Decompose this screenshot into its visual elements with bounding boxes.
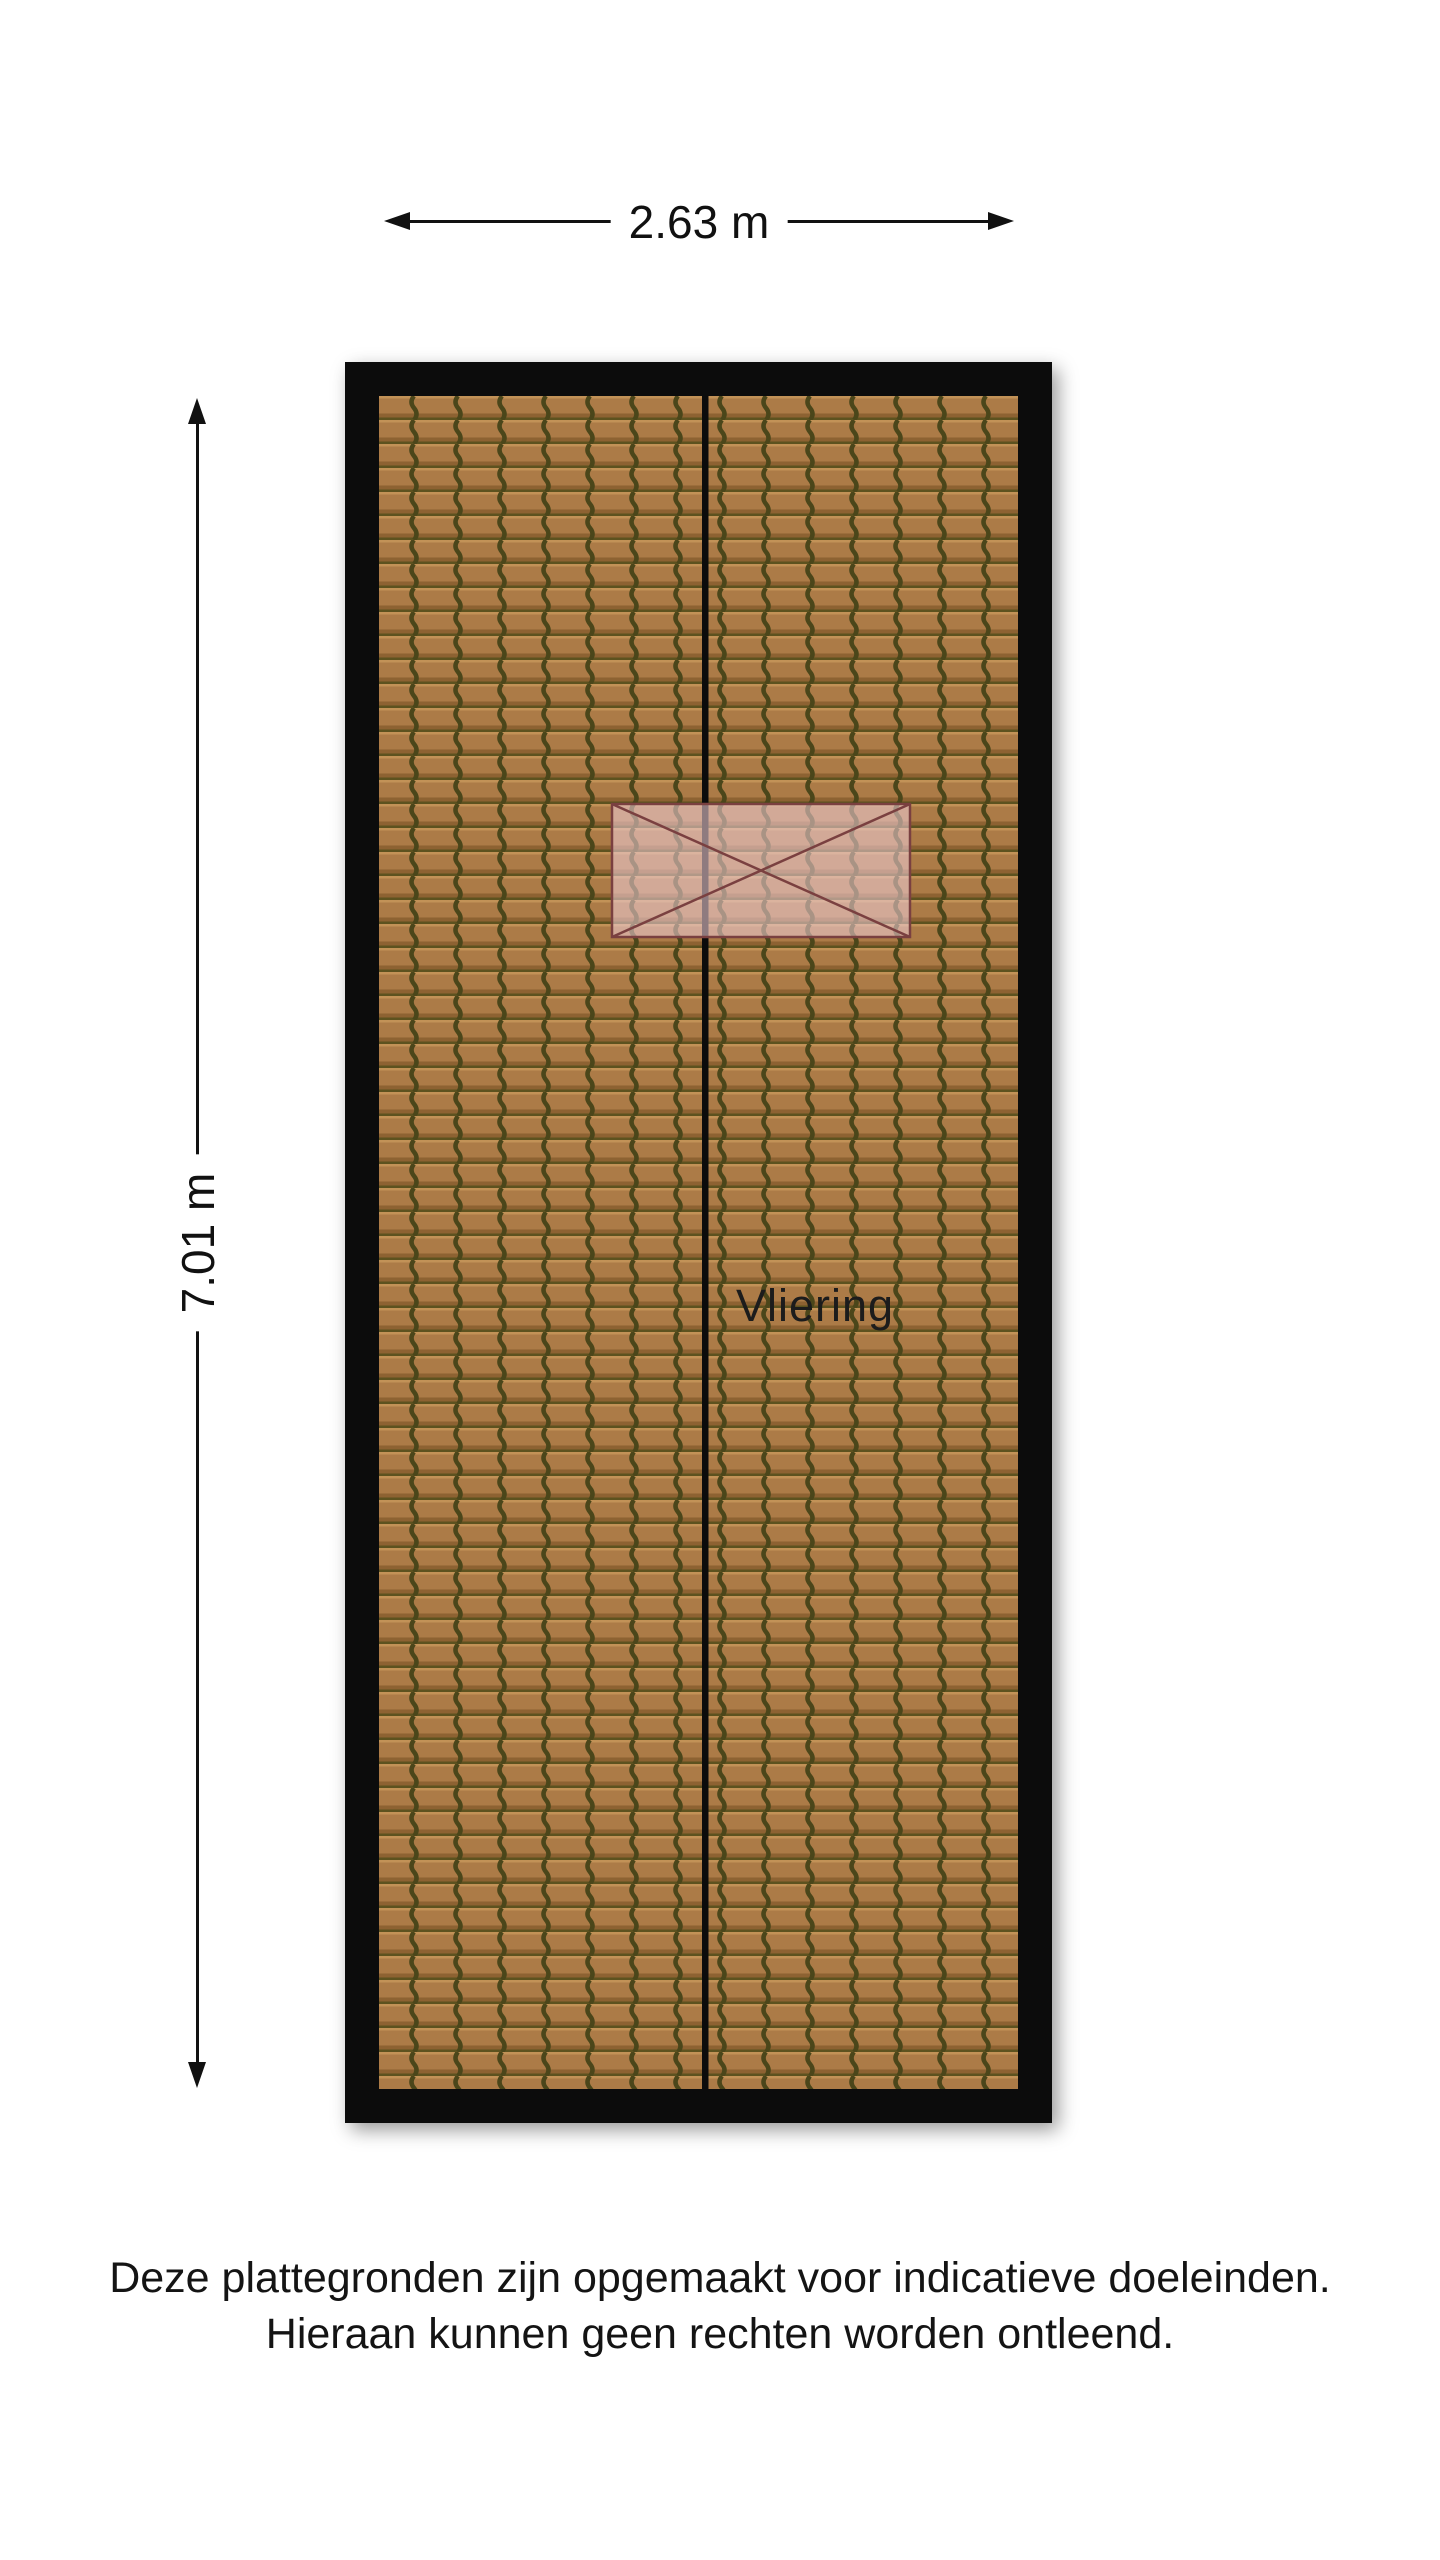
disclaimer-line-2: Hieraan kunnen geen rechten worden ontle… <box>0 2306 1440 2362</box>
height-dimension: 7.01 m <box>175 398 221 2088</box>
disclaimer: Deze plattegronden zijn opgemaakt voor i… <box>0 2250 1440 2362</box>
floorplan <box>345 362 1052 2123</box>
roof-opening-overlay <box>612 804 910 937</box>
arrow-down-icon <box>188 2062 206 2088</box>
wall-outline <box>379 396 1018 2089</box>
center-divider-line <box>702 396 709 2089</box>
floorplan-page: 2.63 m 7.01 m <box>0 0 1440 2560</box>
roof-tile-texture <box>379 396 1018 2089</box>
arrow-up-icon <box>188 398 206 424</box>
disclaimer-line-1: Deze plattegronden zijn opgemaakt voor i… <box>0 2250 1440 2306</box>
room-label: Vliering <box>736 1280 894 1332</box>
height-dimension-label: 7.01 m <box>169 1155 227 1332</box>
width-dimension-label: 2.63 m <box>611 193 788 251</box>
arrow-right-icon <box>988 212 1014 230</box>
arrow-left-icon <box>384 212 410 230</box>
width-dimension: 2.63 m <box>384 199 1014 245</box>
